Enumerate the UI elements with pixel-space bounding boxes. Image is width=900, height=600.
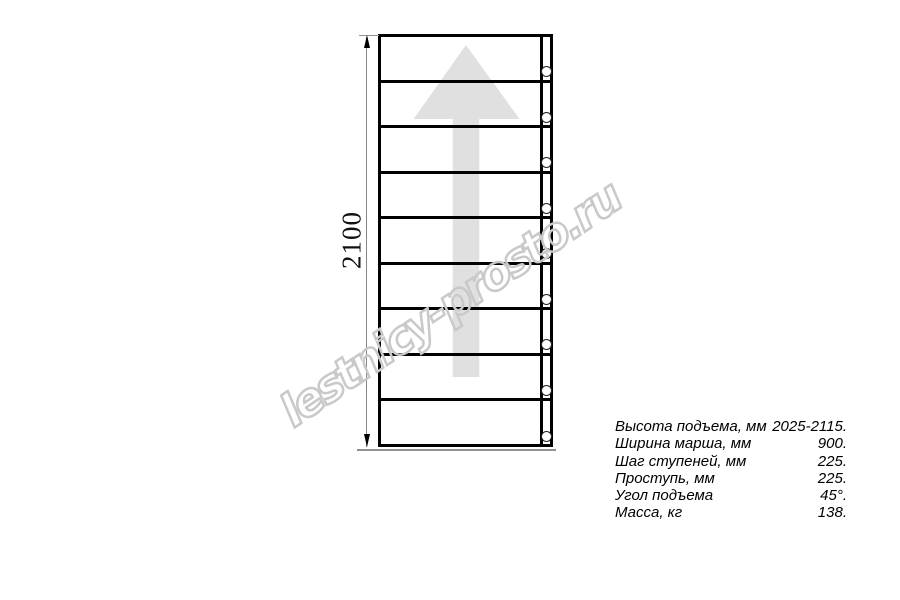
spec-value: 225. — [818, 470, 847, 487]
spec-label: Шаг ступеней, мм — [615, 453, 746, 470]
spec-value: 225. — [818, 453, 847, 470]
step-line — [378, 398, 553, 401]
dimension-arrow-up-icon — [364, 35, 370, 48]
dimension-label: 2100 — [337, 211, 368, 269]
fastener-circle — [541, 294, 552, 305]
spec-value: 900. — [818, 435, 847, 452]
specs-table: Высота подъема, мм2025-2115.Ширина марша… — [615, 418, 847, 522]
spec-row: Шаг ступеней, мм225. — [615, 453, 847, 470]
spec-value: 138. — [818, 504, 847, 521]
extension-line-bottom — [357, 449, 556, 451]
staircase-drawing-canvas: 2100 lestnicy-prosto.ru Высота подъема, … — [0, 0, 900, 600]
spec-row: Высота подъема, мм2025-2115. — [615, 418, 847, 435]
step-line — [378, 125, 553, 128]
spec-row: Ширина марша, мм900. — [615, 435, 847, 452]
step-line — [378, 307, 553, 310]
spec-value: 45°. — [820, 487, 847, 504]
step-line — [378, 353, 553, 356]
spec-label: Проступь, мм — [615, 470, 715, 487]
spec-row: Угол подъема45°. — [615, 487, 847, 504]
spec-label: Масса, кг — [615, 504, 682, 521]
spec-row: Проступь, мм225. — [615, 470, 847, 487]
step-line — [378, 262, 553, 265]
spec-row: Масса, кг138. — [615, 504, 847, 521]
fastener-circle — [541, 385, 552, 396]
spec-label: Ширина марша, мм — [615, 435, 751, 452]
step-line — [378, 80, 553, 83]
step-line — [378, 216, 553, 219]
fastener-circle — [541, 203, 552, 214]
dimension-arrow-down-icon — [364, 434, 370, 447]
staircase-outline — [378, 34, 553, 447]
spec-label: Угол подъема — [615, 487, 713, 504]
spec-label: Высота подъема, мм — [615, 418, 767, 435]
step-line — [378, 171, 553, 174]
fastener-circle — [541, 112, 552, 123]
fastener-circle — [541, 431, 552, 442]
spec-value: 2025-2115. — [772, 418, 847, 435]
